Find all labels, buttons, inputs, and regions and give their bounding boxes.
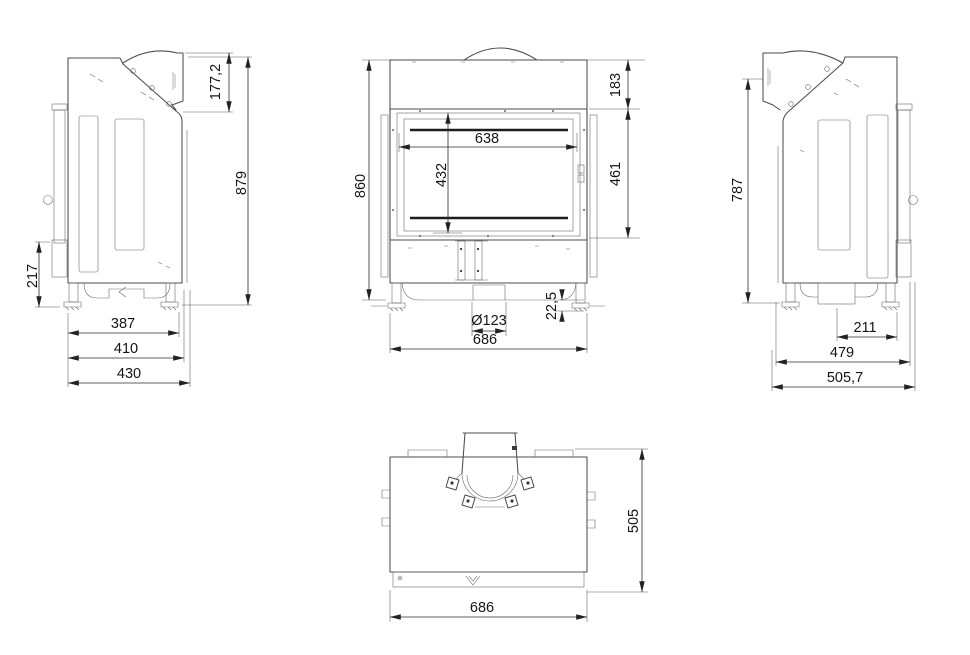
left-feet	[64, 283, 178, 310]
top-edge-tabs	[408, 450, 573, 457]
dim-label-foot-height: 22,5	[544, 292, 560, 320]
technical-drawing-svg: 177,2 879 217 387 410 430	[0, 0, 970, 655]
left-vent-slot-2	[115, 119, 144, 250]
dim-label-overall-height-left: 879	[234, 171, 250, 195]
dim-label-overall-height-front: 860	[353, 174, 369, 198]
right-vent-slot-2	[867, 115, 888, 278]
right-side-view: 787 211 479 505,7	[730, 51, 918, 391]
dim-label-base-430: 430	[117, 366, 141, 382]
front-body-outline	[390, 60, 587, 283]
front-view: 860 183 461 638 432 Ø123 22,5 686	[353, 48, 645, 353]
top-extension-lines	[390, 449, 648, 622]
right-pedestal-box	[818, 283, 855, 304]
right-base-skirt	[800, 283, 878, 297]
left-base-skirt	[84, 283, 170, 298]
right-fairing-label-marks	[768, 68, 770, 86]
left-body-outline	[68, 58, 182, 283]
left-fairing-label-marks	[173, 72, 175, 90]
dim-label-base-479: 479	[830, 345, 854, 361]
right-feet	[782, 283, 899, 310]
top-front-strip	[393, 572, 584, 587]
top-front-v-mark	[466, 576, 480, 585]
dim-label-lower-front-height: 217	[25, 264, 41, 288]
front-lower-bracket	[455, 241, 488, 280]
top-flue-collar	[446, 433, 534, 508]
front-flue-pipe-bottom	[473, 285, 505, 300]
dim-label-overall-width-top: 686	[470, 600, 494, 616]
top-body-outline	[390, 457, 587, 572]
dim-label-door-area: 461	[608, 162, 624, 186]
left-flue-fairing	[123, 51, 183, 110]
left-side-view: 177,2 879 217 387 410 430	[25, 51, 252, 387]
right-lower-box	[896, 240, 911, 277]
top-front-screw-dot	[399, 577, 400, 578]
dim-label-glass-width: 638	[475, 131, 499, 147]
front-band-marks	[408, 246, 570, 249]
left-vent-slot-1	[79, 116, 98, 272]
front-side-strip-left	[381, 115, 388, 277]
right-door-strip	[898, 110, 910, 243]
dim-label-base-410: 410	[114, 341, 138, 357]
left-lower-box	[52, 240, 67, 277]
dim-label-top-band: 183	[608, 73, 624, 97]
right-extension-lines	[742, 79, 915, 391]
dim-label-flue-section-height: 177,2	[208, 64, 224, 100]
dim-label-base-211: 211	[853, 320, 876, 336]
door-frame-outer	[390, 109, 587, 240]
door-latch	[578, 165, 584, 182]
left-rivet-marks	[90, 74, 170, 268]
dim-label-base-505-7: 505,7	[827, 370, 863, 386]
front-flue-arc	[464, 48, 537, 60]
dim-label-overall-width-front: 686	[473, 332, 497, 348]
bolt-circles	[131, 69, 172, 107]
left-door-strip-cap	[52, 104, 67, 110]
left-base-break-mark	[119, 287, 126, 297]
top-view: 505 686	[382, 433, 648, 622]
right-body-outline	[783, 57, 897, 283]
dim-label-glass-height: 432	[434, 163, 450, 187]
dim-label-base-387: 387	[111, 316, 135, 332]
dim-label-flue-diameter: Ø123	[471, 313, 506, 329]
left-handle-circle	[44, 196, 53, 205]
top-side-notches	[382, 490, 595, 528]
dim-label-overall-depth-top: 505	[626, 509, 642, 533]
left-door-strip	[54, 110, 65, 243]
right-vent-slot-1	[818, 120, 850, 250]
right-flue-fairing	[763, 51, 843, 110]
fireplace-technical-drawing: 177,2 879 217 387 410 430	[0, 0, 970, 655]
front-side-strip-right	[590, 115, 597, 277]
right-door-strip-cap	[896, 104, 912, 110]
bolt-circles	[789, 67, 830, 107]
dim-label-overall-height-right: 787	[730, 178, 746, 202]
